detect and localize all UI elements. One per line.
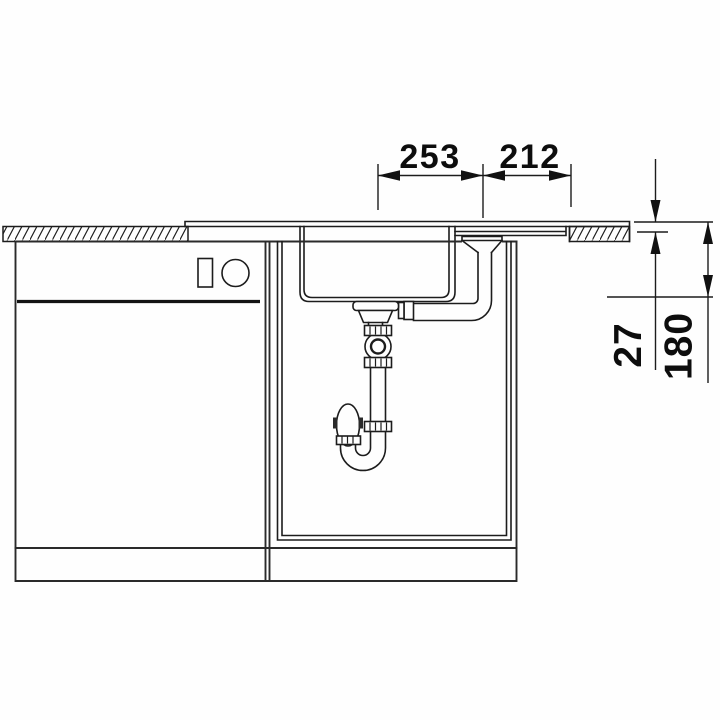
ball-joint-outer — [365, 334, 391, 360]
sink-cabinet-inner-wall-inner — [282, 242, 507, 536]
tailpipe — [371, 368, 386, 422]
cabinet-divider — [266, 242, 270, 582]
dimensions-top: 253 212 — [378, 138, 571, 218]
u-bend-trap — [333, 404, 386, 470]
dimensions-right: 27 180 — [607, 159, 713, 383]
dimension-label-212: 212 — [499, 138, 560, 176]
sink-bowl-inner — [304, 227, 449, 298]
arrowhead — [651, 232, 661, 254]
inlet-fitting — [404, 302, 414, 320]
control-rect-symbol — [198, 259, 213, 288]
appliance-controls — [17, 259, 260, 302]
technical-drawing-canvas: 253 212 27 180 — [0, 0, 720, 720]
arrowhead — [703, 222, 713, 244]
dimension-label-253: 253 — [399, 138, 460, 176]
sink-unit — [185, 222, 630, 302]
trap-union-nut — [337, 436, 361, 445]
control-knob-symbol — [222, 260, 249, 287]
funnel-cone — [462, 241, 502, 253]
countertop-left-section — [3, 227, 188, 242]
drainer-recess — [455, 227, 570, 242]
funnel-flange — [462, 237, 502, 241]
trap-side-nub-left — [333, 418, 338, 429]
overflow-drain — [414, 237, 503, 321]
arrowhead — [378, 170, 400, 181]
dimension-label-180: 180 — [658, 312, 701, 380]
drain-assembly — [333, 237, 502, 471]
arrowhead — [461, 170, 483, 181]
countertop-right-section — [570, 227, 630, 242]
coupling-nut-lower — [365, 422, 392, 432]
elbow-pipe-outer — [414, 253, 492, 321]
arrowhead — [703, 275, 713, 297]
trap-side-nub-right — [359, 418, 364, 429]
arrowhead — [651, 200, 661, 222]
sink-cabinet-inner-wall-outer — [278, 242, 512, 541]
countertop — [3, 227, 630, 242]
strainer-cup — [359, 311, 393, 323]
sink-bowl-outer — [300, 227, 455, 302]
strainer-flange — [353, 302, 399, 311]
base-cabinets — [16, 242, 517, 582]
sink-installation-drawing: 253 212 27 180 — [0, 0, 720, 720]
dimension-label-27: 27 — [607, 322, 650, 367]
inlet-fitting-collar — [399, 303, 405, 319]
